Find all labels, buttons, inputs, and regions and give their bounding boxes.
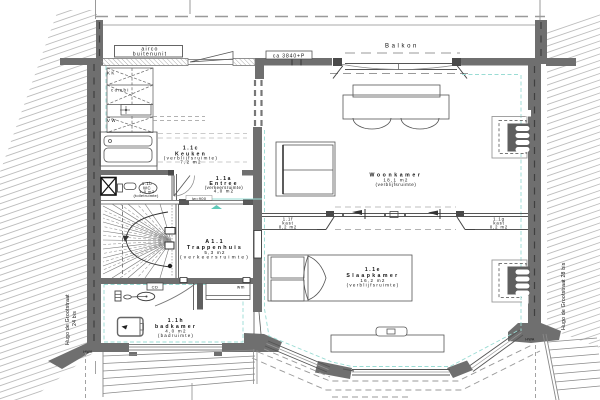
svg-text:Hugo de Grootstraat: Hugo de Grootstraat [65,294,71,345]
svg-text:lw=900: lw=900 [192,196,207,201]
svg-text:buitenunit: buitenunit [133,52,168,58]
svg-text:Balkon: Balkon [385,44,419,50]
svg-text:ca 3840+P: ca 3840+P [273,53,305,59]
svg-text:(verkeersruimte): (verkeersruimte) [180,255,250,261]
svg-text:HWA: HWA [83,350,92,354]
svg-text:Hugo de Grootstraat 28 bis: Hugo de Grootstraat 28 bis [561,262,567,330]
svg-text:(toiletruimte): (toiletruimte) [133,193,158,198]
svg-text:combi: combi [111,88,130,93]
svg-text:24 bis: 24 bis [72,311,78,326]
svg-text:4,0 m2: 4,0 m2 [214,188,235,193]
svg-text:7,2 m2: 7,2 m2 [180,160,202,165]
svg-text:HWA: HWA [525,338,534,342]
svg-text:0,2 m2: 0,2 m2 [490,225,508,230]
svg-text:VW: VW [107,118,117,123]
svg-text:wm: wm [237,285,245,290]
svg-text:(verblijfsruimte): (verblijfsruimte) [376,182,417,187]
svg-text:(verblijfsruimte): (verblijfsruimte) [347,283,400,288]
svg-text:0,2 m2: 0,2 m2 [279,225,297,230]
svg-text:(badruimte): (badruimte) [158,333,194,338]
svg-text:CD: CD [152,284,159,289]
svg-text:5,3 m2: 5,3 m2 [204,250,225,255]
svg-text:KK: KK [107,71,116,76]
